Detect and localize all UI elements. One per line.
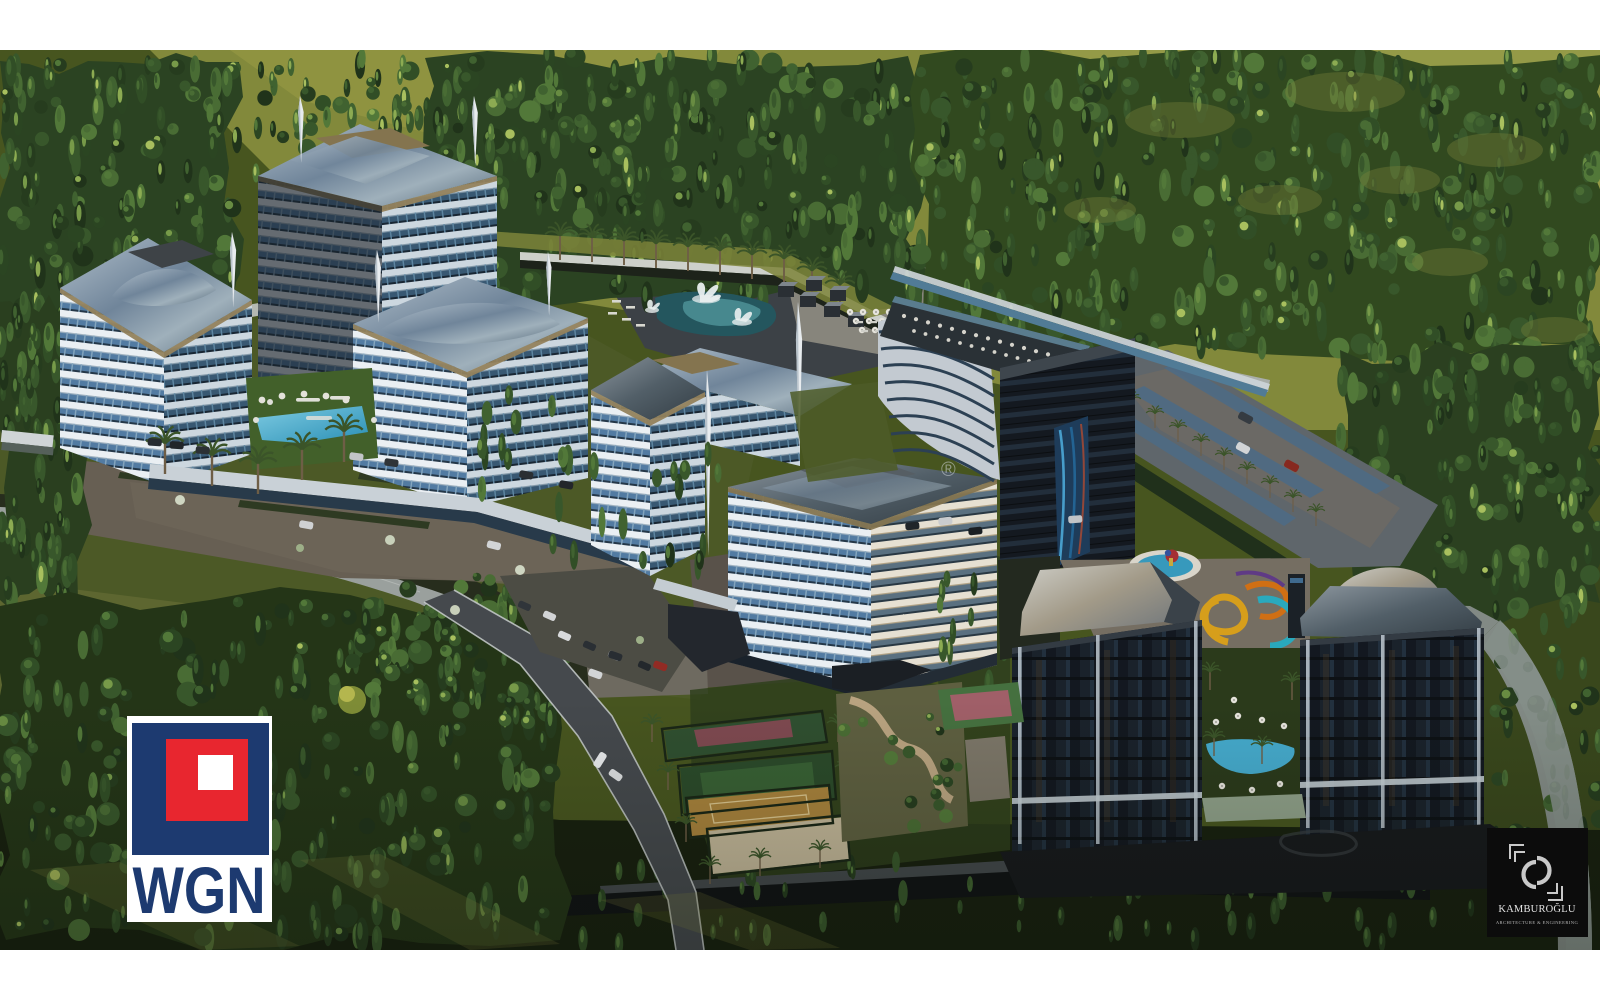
svg-text:WGN: WGN [133,853,266,927]
svg-text:KAMBUROĞLU: KAMBUROĞLU [1498,903,1575,915]
svg-text:®: ® [941,459,956,481]
svg-text:ARCHITECTURE & ENGINEERING: ARCHITECTURE & ENGINEERING [1496,920,1579,925]
